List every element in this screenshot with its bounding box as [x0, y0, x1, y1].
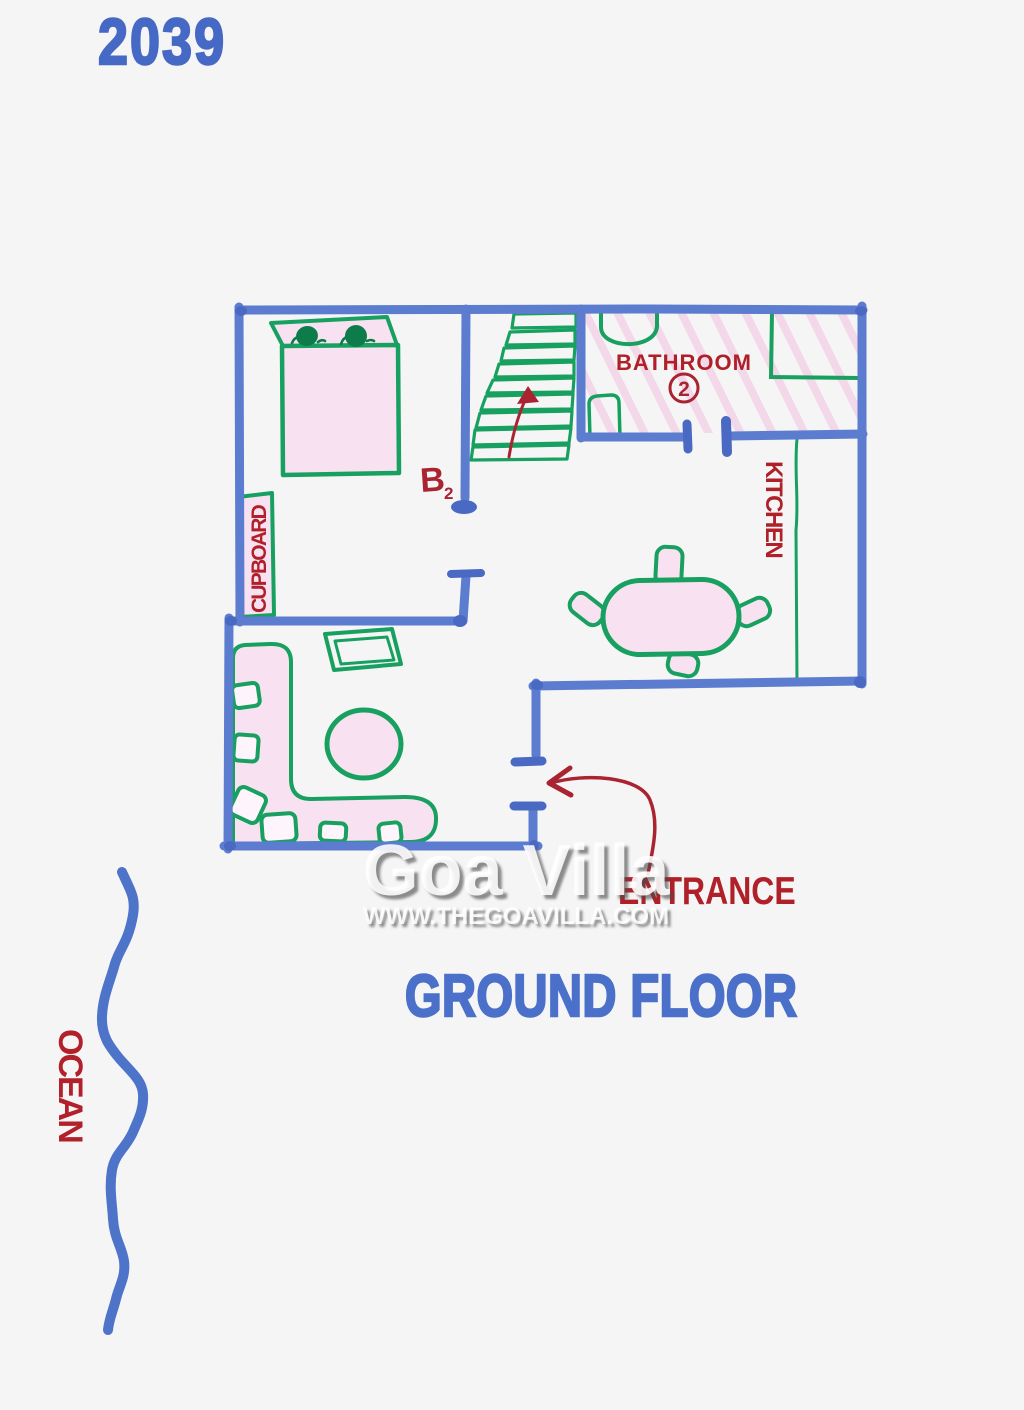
svg-text:OCEAN: OCEAN [51, 1029, 89, 1142]
svg-text:Goa Villa: Goa Villa [363, 831, 671, 911]
svg-text:2: 2 [444, 484, 453, 503]
svg-text:WWW.THEGOAVILLA.COM: WWW.THEGOAVILLA.COM [363, 903, 669, 930]
svg-text:2: 2 [678, 378, 690, 401]
svg-text:BATHROOM: BATHROOM [616, 350, 752, 375]
svg-text:2039: 2039 [98, 5, 226, 78]
svg-text:CUPBOARD: CUPBOARD [248, 504, 271, 613]
svg-text:B: B [419, 460, 446, 500]
svg-text:GROUND FLOOR: GROUND FLOOR [405, 963, 797, 1030]
svg-text:KITCHEN: KITCHEN [760, 461, 787, 557]
